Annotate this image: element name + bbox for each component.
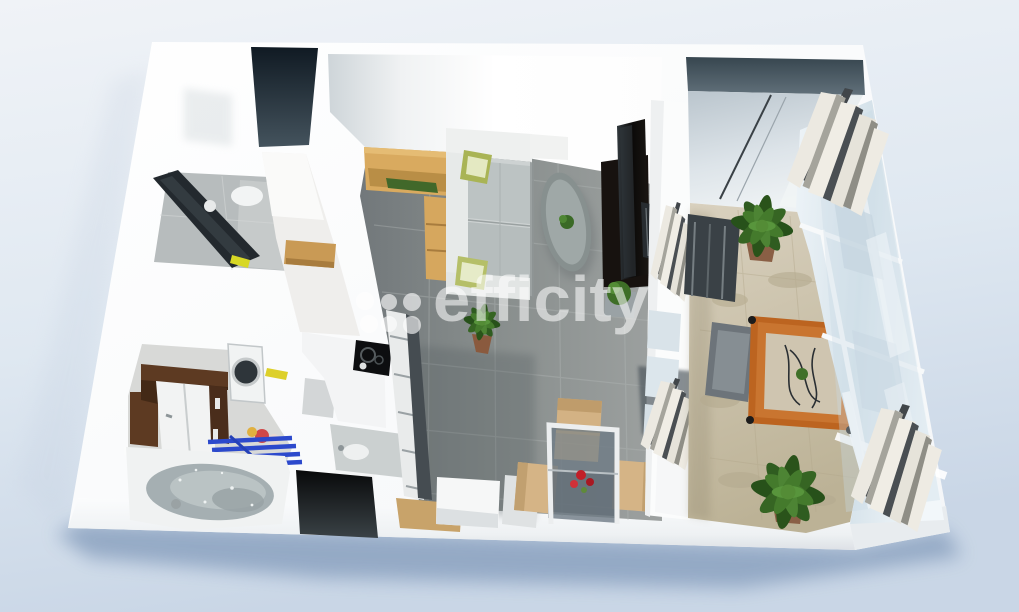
svg-text:efficity: efficity [433, 263, 649, 335]
